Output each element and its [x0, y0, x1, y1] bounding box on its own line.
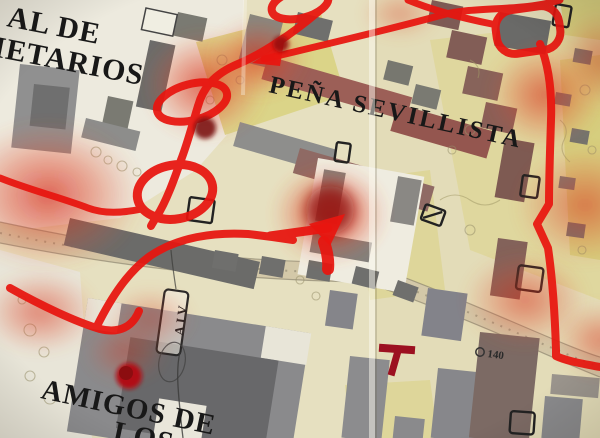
map-canvas: AIV 140 [0, 0, 600, 438]
map-photo: AIV 140 [0, 0, 600, 438]
paper-creases [0, 0, 600, 438]
